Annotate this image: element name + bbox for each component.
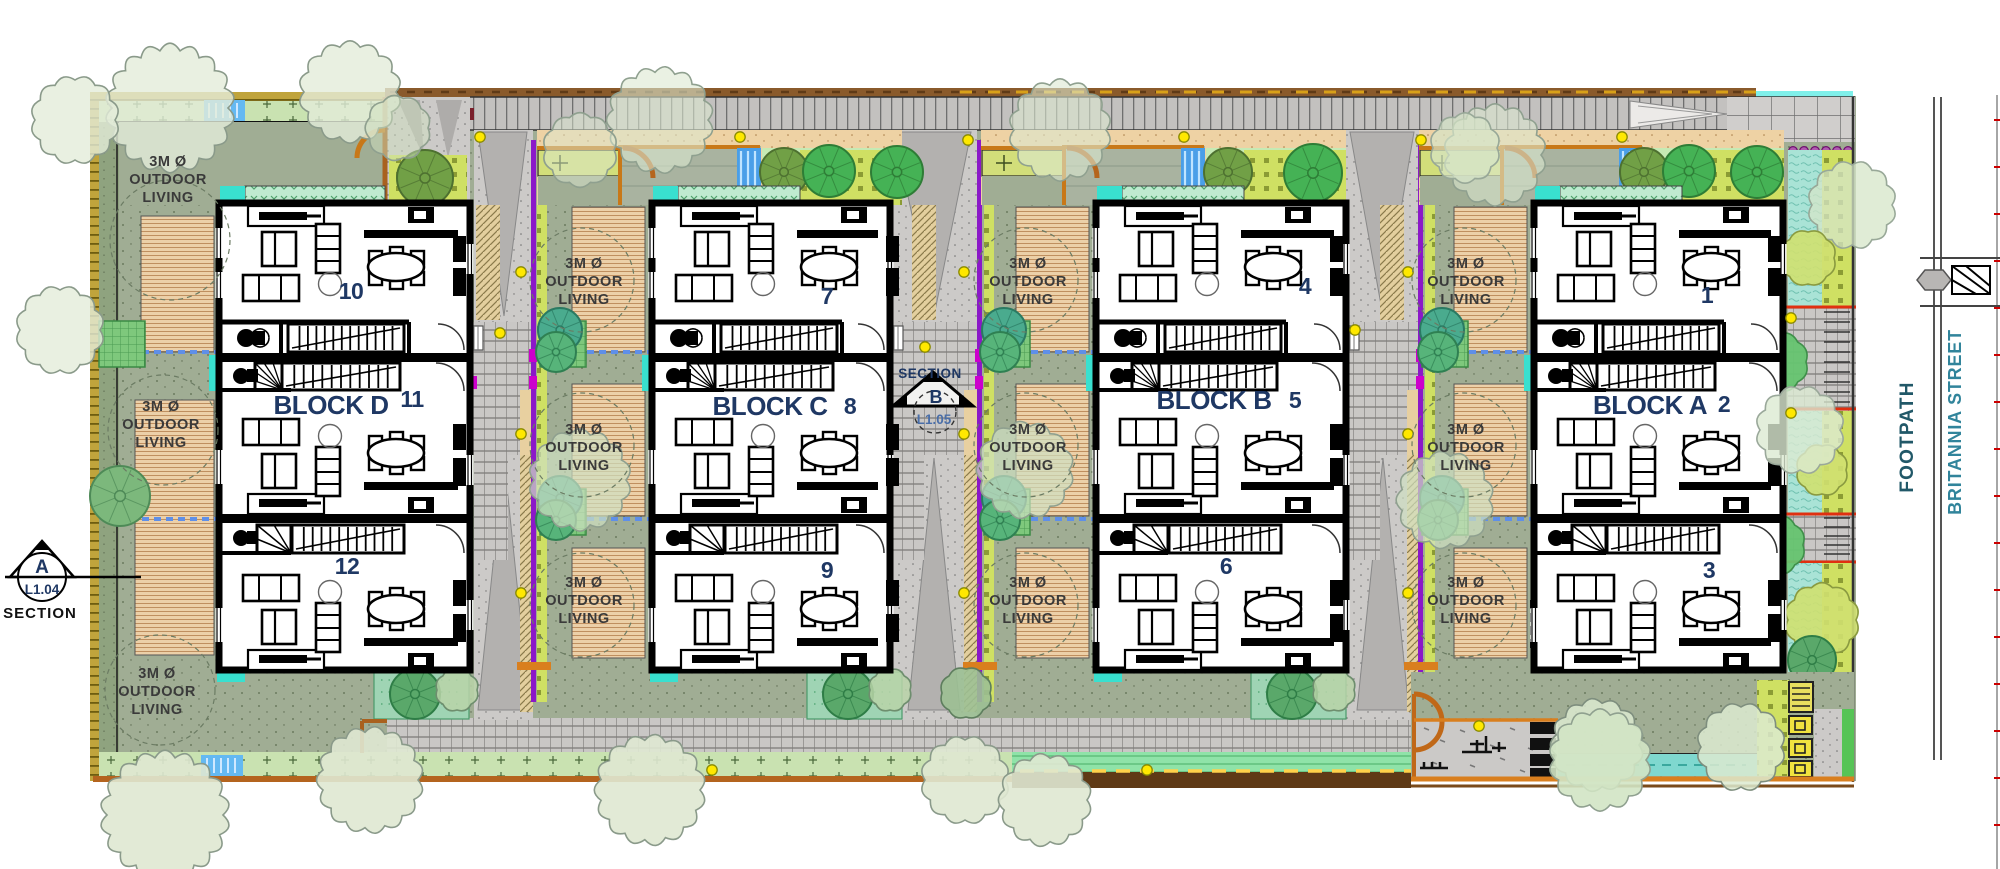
svg-text:5: 5	[1289, 387, 1302, 413]
svg-text:SECTION: SECTION	[3, 605, 77, 622]
svg-text:7: 7	[821, 283, 833, 309]
svg-text:FOOTPATH: FOOTPATH	[1897, 381, 1918, 492]
svg-text:2: 2	[1718, 391, 1730, 417]
svg-text:L1.04: L1.04	[25, 582, 60, 597]
svg-text:BLOCK B: BLOCK B	[1157, 385, 1272, 415]
svg-text:BLOCK C: BLOCK C	[713, 391, 829, 421]
svg-text:1: 1	[1701, 282, 1714, 308]
svg-text:12: 12	[335, 553, 360, 579]
svg-text:A: A	[35, 557, 49, 578]
svg-text:BLOCK A: BLOCK A	[1593, 390, 1708, 420]
svg-text:BRITANNIA STREET: BRITANNIA STREET	[1945, 329, 1965, 515]
svg-text:SECTION: SECTION	[898, 366, 962, 381]
svg-text:11: 11	[400, 386, 424, 412]
svg-text:4: 4	[1299, 273, 1312, 299]
svg-text:9: 9	[821, 557, 833, 583]
svg-text:L1.05: L1.05	[917, 412, 952, 427]
svg-text:B: B	[930, 387, 943, 407]
svg-text:8: 8	[844, 393, 857, 419]
svg-text:3: 3	[1703, 557, 1715, 583]
svg-text:10: 10	[339, 278, 364, 304]
svg-text:6: 6	[1220, 553, 1232, 579]
svg-text:BLOCK D: BLOCK D	[274, 390, 389, 420]
